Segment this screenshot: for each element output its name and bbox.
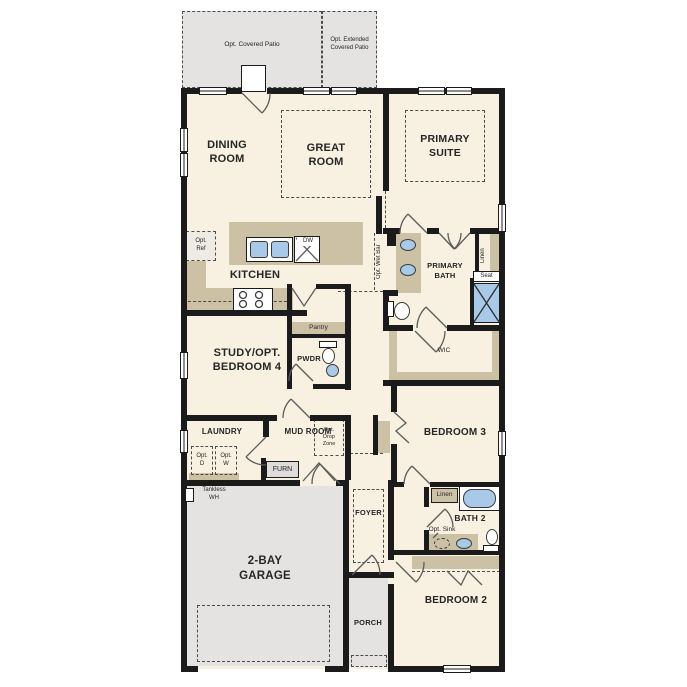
floor-plan: Opt. Covered Patio Opt. Extended Covered… — [0, 0, 687, 687]
room-label-primary-bath: PRIMARY BATH — [421, 260, 469, 282]
room-label-dining: DINING ROOM — [193, 134, 261, 170]
wall-bath2-left-a — [424, 487, 429, 507]
bath2-sink — [456, 538, 472, 549]
room-label-opt-covered-patio: Opt. Covered Patio — [190, 38, 314, 52]
kitchen-sink-basin-left — [250, 241, 268, 258]
cooktop — [233, 288, 273, 311]
primary-sink-1 — [400, 239, 416, 251]
bath2-opt-sink — [434, 538, 450, 549]
room-label-great: GREAT ROOM — [292, 137, 360, 173]
wall-bath-stub-top — [387, 233, 396, 246]
wall-exterior-bottom-a — [181, 666, 198, 672]
wall-laundry-stub — [263, 421, 269, 437]
wall-pantry-pwdr — [292, 334, 345, 338]
label-opt-washer: Opt. W — [216, 449, 236, 473]
bedroom2-closet-shelf — [412, 556, 500, 569]
garage-driveway-outline — [197, 605, 330, 662]
tankless-water-heater — [185, 488, 194, 502]
wall-bedroom3-left-a — [391, 386, 397, 412]
wall-great-suite — [383, 94, 389, 191]
coat-closet-shelf — [378, 421, 390, 453]
label-opt-wet-bar: Opt. Wet Bar — [375, 234, 385, 289]
wall-hall-kitchen — [376, 196, 382, 234]
room-label-garage: 2-BAY GARAGE — [227, 553, 303, 585]
room-label-study: STUDY/OPT. BEDROOM 4 — [196, 344, 298, 376]
label-dishwasher: DW — [297, 238, 319, 246]
label-linen-bath2: Linen — [431, 489, 458, 502]
window — [331, 87, 357, 95]
room-label-bedroom2: BEDROOM 2 — [413, 594, 499, 606]
kitchen-counter-left — [186, 261, 206, 289]
patio-door-alcove — [241, 65, 266, 92]
window — [180, 128, 188, 152]
room-label-foyer: FOYER — [352, 508, 385, 518]
room-label-kitchen: KITCHEN — [221, 268, 289, 282]
bath2-toilet-tank — [483, 545, 499, 552]
label-opt-ref: Opt. Ref — [188, 234, 214, 258]
window — [180, 430, 188, 453]
window — [443, 665, 471, 673]
bath2-tub-basin — [463, 489, 496, 508]
primary-toilet-tank — [387, 301, 394, 317]
label-linen-primary: Linen — [479, 237, 489, 275]
wall-bedroom2-left — [388, 584, 394, 666]
wall-bath-wic-b — [447, 325, 505, 331]
wic-shelf-bottom — [389, 372, 500, 380]
label-opt-drop-zone: Opt. Drop Zone — [315, 421, 343, 454]
label-opt-sink: Opt. Sink — [422, 526, 462, 534]
label-shower-seat: Seat — [473, 272, 500, 281]
kitchen-sink-basin-right — [271, 241, 289, 258]
room-label-primary-suite: PRIMARY SUITE — [410, 129, 480, 165]
bedroom2-closet-rod — [412, 571, 500, 572]
wall-wic-bedroom3 — [383, 380, 505, 386]
pwdr-sink — [326, 364, 339, 377]
room-label-bath2: BATH 2 — [448, 513, 492, 524]
label-opt-dryer: Opt. D — [192, 449, 212, 473]
wall-pwdr-bottom-a — [287, 384, 292, 389]
label-tankless-wh: Tankless WH — [195, 487, 233, 503]
window — [418, 87, 445, 95]
room-label-laundry: LAUNDRY — [190, 427, 254, 438]
room-label-wic: WIC — [424, 346, 464, 356]
wall-pantry-right — [345, 284, 351, 390]
suite-optional-opening — [385, 191, 386, 228]
pwdr-toilet-tank — [319, 341, 337, 348]
window — [303, 87, 330, 95]
wall-coat-closet — [373, 415, 378, 455]
wall-pwdr-bottom-b — [313, 384, 350, 389]
wall-mudroom-right — [345, 415, 351, 480]
wall-bedroom3-left-b — [391, 444, 397, 482]
mudroom-foyer-optional-wall — [350, 453, 383, 454]
wall-garage-top-a — [181, 480, 300, 486]
porch-steps — [351, 655, 387, 667]
wall-porch-top — [343, 572, 394, 578]
window — [498, 204, 506, 232]
window — [498, 431, 506, 456]
wall-pantry-top — [316, 284, 348, 289]
room-label-pantry: Pantry — [292, 323, 345, 334]
primary-toilet-bowl — [394, 302, 410, 320]
foyer-optional-outline — [353, 489, 384, 563]
wall-bath-wic-a — [383, 325, 413, 331]
window — [180, 352, 188, 379]
window — [199, 87, 227, 95]
wall-suite-bath-b — [427, 228, 439, 234]
label-furnace: FURN — [266, 462, 299, 477]
wall-bedroom3-corner — [391, 482, 404, 487]
primary-sink-2 — [400, 264, 416, 276]
room-label-porch: PORCH — [350, 618, 386, 628]
primary-shower — [473, 283, 500, 323]
bath2-toilet-bowl — [486, 529, 498, 545]
room-label-bedroom3: BEDROOM 3 — [413, 426, 497, 438]
room-label-opt-extended-patio: Opt. Extended Covered Patio — [323, 33, 376, 57]
wall-bath-stub-mid — [383, 290, 398, 296]
window — [446, 87, 472, 95]
window — [180, 153, 188, 177]
